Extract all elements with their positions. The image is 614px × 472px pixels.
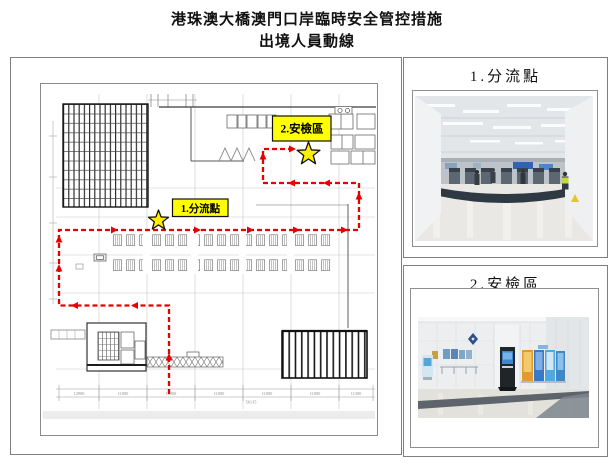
panel-title-divert: 1.分流點 <box>404 65 607 86</box>
photo-frame-security <box>410 288 599 448</box>
dimension-label: 11000 <box>118 391 129 396</box>
photo-frame-divert <box>412 90 598 247</box>
security-check-label: 2.安檢區 <box>273 116 332 141</box>
photo-divert-point <box>415 96 593 241</box>
security-check-label-text: 2.安檢區 <box>280 122 324 136</box>
page-subtitle: 出境人員動線 <box>0 32 614 54</box>
page: 港珠澳大橋澳門口岸臨時安全管控措施 出境人員動線 <box>0 0 614 472</box>
photo-security-area <box>418 317 589 418</box>
digital-kiosk <box>498 347 517 391</box>
dimension-label: 11000 <box>166 391 177 396</box>
plan-striped-block <box>282 331 367 378</box>
floor-plan-panel: 12900 11000 11000 11000 11000 11000 1130… <box>10 57 402 455</box>
divert-point-label-text: 1.分流點 <box>181 202 221 215</box>
dimension-label: 11000 <box>214 391 225 396</box>
page-title: 港珠澳大橋澳門口岸臨時安全管控措施 <box>0 10 614 32</box>
dimension-label: 12900 <box>74 391 85 396</box>
dimension-label: 11000 <box>262 391 273 396</box>
photo-panel-divert: 1.分流點 <box>403 57 608 258</box>
plan-escalator-block <box>63 104 148 207</box>
dimension-label: 11300 <box>351 391 362 396</box>
divert-point-label: 1.分流點 <box>173 199 229 217</box>
floor-plan: 12900 11000 11000 11000 11000 11000 1130… <box>41 84 377 435</box>
floor-plan-frame: 12900 11000 11000 11000 11000 11000 1130… <box>40 83 378 436</box>
dimension-label: 11000 <box>310 391 321 396</box>
dimension-total-label: 56135 <box>246 400 257 405</box>
title-block: 港珠澳大橋澳門口岸臨時安全管控措施 出境人員動線 <box>0 10 614 54</box>
check-in-kiosk <box>422 355 433 380</box>
security-gates <box>449 168 560 184</box>
photo-panel-security: 2.安檢區 <box>403 265 608 457</box>
